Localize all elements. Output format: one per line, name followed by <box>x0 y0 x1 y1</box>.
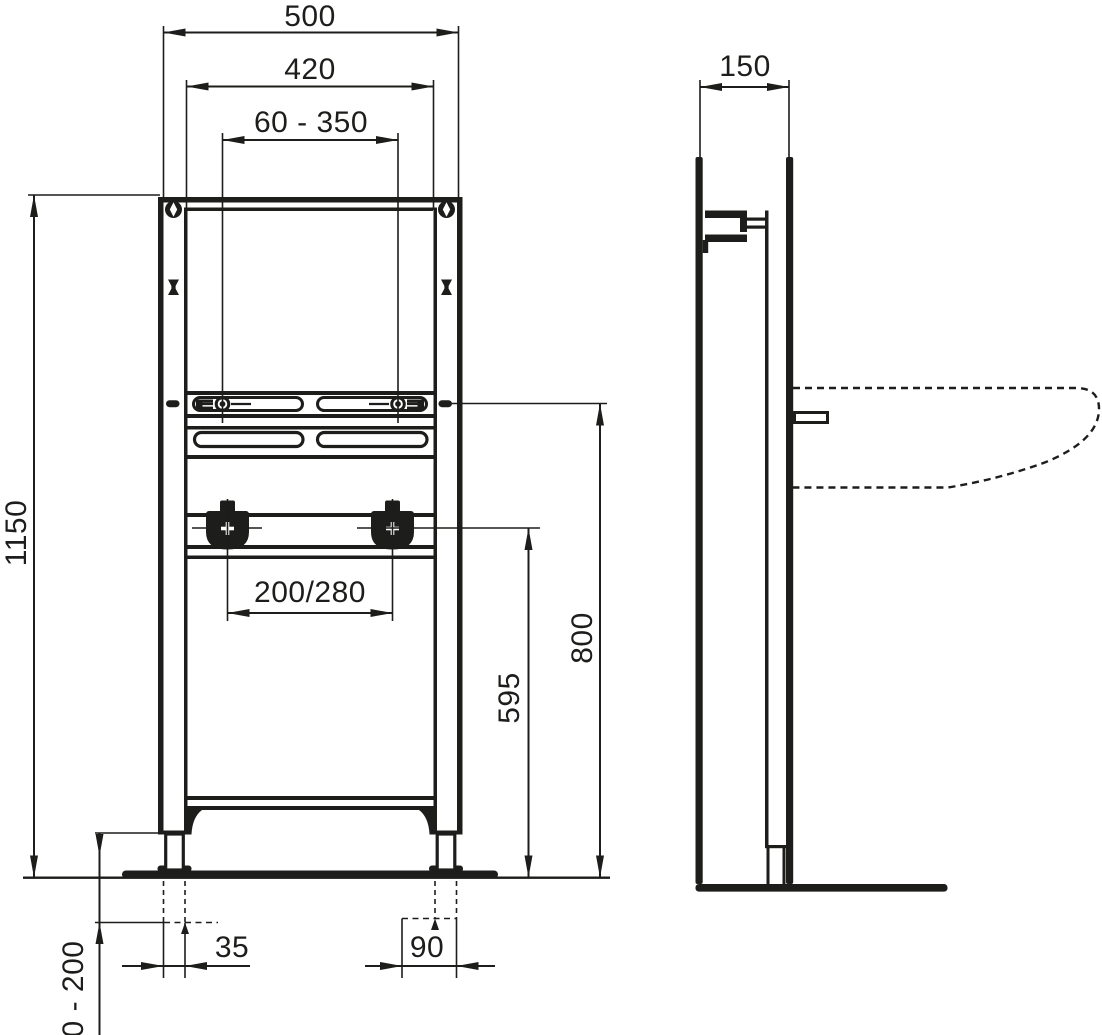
tap-rail-row <box>166 391 452 418</box>
basin-mounting-bolt <box>795 413 828 423</box>
frame-top-inner-bar <box>188 208 434 212</box>
technical-drawing-washbasin-frame: 500 420 60 - 350 1150 800 595 200/280 35… <box>0 0 1102 1035</box>
rail-slot-left <box>168 280 179 296</box>
slot2-right <box>318 433 428 447</box>
dim-foot-width: 35 <box>215 931 249 964</box>
frame-right-rail-inner <box>434 208 438 835</box>
wall-line <box>696 157 703 884</box>
frame-left-rail-inner <box>184 208 188 835</box>
washbasin-outline <box>793 388 1099 488</box>
dim-water-connection-spacing: 200/280 <box>254 576 366 609</box>
side-floor-line <box>696 884 948 892</box>
dim-leg-adjustment-range: 0 - 200 <box>57 941 90 1035</box>
side-foot-front <box>767 848 770 884</box>
dim-fixture-spacing-range: 60 - 350 <box>254 106 368 139</box>
rail-bottom-cap-right <box>430 831 463 835</box>
slot2-left <box>195 433 304 447</box>
gusset-left <box>188 810 203 834</box>
rail-tick-left <box>166 400 180 407</box>
foot-left <box>166 834 184 870</box>
dim-foot-anchor-spacing: 90 <box>410 931 444 964</box>
drawing-svg: 500 420 60 - 350 1150 800 595 200/280 35… <box>0 0 1102 1035</box>
dim-inner-width: 420 <box>284 53 336 86</box>
base-plate <box>122 871 498 879</box>
frame-front-profile <box>786 157 793 884</box>
dim-drain-height: 595 <box>493 672 526 724</box>
rail-slot-right <box>441 280 452 296</box>
side-view <box>696 157 1100 892</box>
frame-right-rail <box>457 197 463 834</box>
gusset-right <box>419 810 434 834</box>
dim-fixture-height: 800 <box>566 612 599 664</box>
dim-frame-depth: 150 <box>719 50 771 83</box>
foot-right <box>437 834 455 870</box>
foot-step-line <box>765 845 787 848</box>
frame-rear-profile <box>765 211 769 848</box>
wall-bracket <box>703 211 766 254</box>
water-connection-row <box>188 501 434 560</box>
frame-top-bar <box>158 197 463 203</box>
frame-left-rail <box>158 197 164 834</box>
side-foot-rear <box>783 848 786 884</box>
bottom-crossbar <box>188 796 434 834</box>
dim-frame-height: 1150 <box>0 500 33 567</box>
slot-rail-row <box>188 426 434 459</box>
front-view <box>23 197 610 879</box>
extension-lines <box>28 26 789 978</box>
dim-overall-width: 500 <box>284 0 336 33</box>
rail-tick-right <box>439 400 453 407</box>
